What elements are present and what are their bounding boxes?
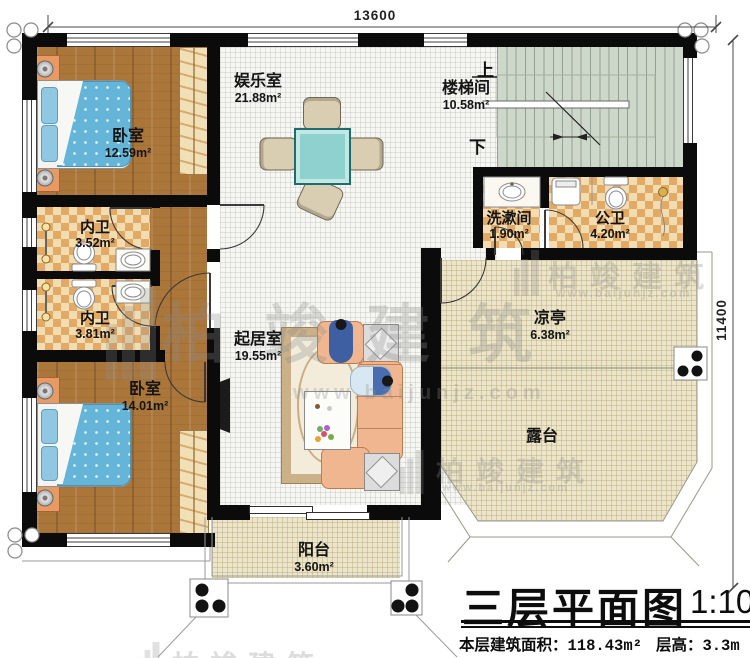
- wall-living-bottom-a: [207, 505, 250, 520]
- wall-bedroom-right-a: [207, 47, 220, 205]
- wall-bath-divider: [37, 271, 160, 279]
- pillow: [41, 87, 58, 124]
- wall-living-bottom-b: [367, 505, 441, 520]
- watermark-logo-icon: [398, 450, 426, 496]
- wardrobe: [179, 47, 209, 175]
- chair: [346, 138, 384, 171]
- room-label-stairwell: 楼梯间 10.58m²: [442, 80, 490, 113]
- title-underline: [461, 626, 750, 628]
- pillow: [41, 409, 58, 444]
- watermark-logo-icon: [512, 250, 542, 298]
- watermark-logo-icon: [136, 642, 162, 658]
- wall-wash-public-divider: [540, 177, 549, 208]
- floorplan-canvas: 柏竣建筑 www.baijunjz.com 柏竣建筑 www.baijunjz.…: [0, 0, 750, 658]
- room-label-publicbath: 公卫 4.20m²: [590, 210, 630, 242]
- watermark-name: 柏竣建筑: [162, 284, 570, 376]
- wall-bath-right-b: [150, 250, 160, 286]
- window: [67, 533, 170, 547]
- chair: [303, 97, 341, 130]
- stairs-down-label: 下: [469, 133, 486, 158]
- window: [248, 33, 358, 47]
- stairs-up-label: 上: [477, 56, 494, 81]
- dimension-right: 11400: [714, 285, 730, 355]
- title-underline: [461, 620, 750, 623]
- room-label-terrace: 露台: [526, 428, 558, 446]
- title-stats: 本层建筑面积：118.43m²层高：3.3m: [459, 633, 740, 655]
- room-label-bedroom1: 卧室 12.59m²: [105, 128, 152, 161]
- room-label-livingroom: 起居室 19.55m²: [234, 331, 282, 364]
- watermark-url: www.baijunjz.com: [293, 382, 546, 405]
- floor-area-value: 118.43m²: [568, 637, 642, 655]
- side-table: [364, 453, 400, 491]
- pillow: [41, 125, 58, 162]
- room-label-balcony: 阳台 3.60m²: [294, 542, 334, 575]
- window: [22, 290, 37, 331]
- window: [67, 33, 170, 47]
- armchair: [321, 447, 370, 489]
- chair: [260, 138, 298, 171]
- sliding-door: [306, 512, 370, 520]
- game-table: [294, 128, 351, 185]
- watermark-name: 柏竣建筑: [172, 644, 324, 658]
- wall-bathblock-bottom-a: [486, 248, 495, 260]
- room-label-innerbath2: 内卫 3.81m²: [75, 310, 115, 342]
- watermark-url: www.baijunjz.com: [556, 286, 692, 300]
- room-label-bedroom2: 卧室 14.01m²: [122, 381, 169, 414]
- wall-bath-right-a: [150, 195, 160, 208]
- floor-stairwell: [497, 47, 683, 167]
- wardrobe: [179, 430, 209, 534]
- window: [22, 398, 37, 492]
- floor-height-label: 层高：: [656, 637, 703, 654]
- window: [683, 58, 697, 143]
- room-label-pavilion: 凉亭 6.38m²: [530, 310, 570, 343]
- window: [424, 33, 467, 47]
- floor-height-value: 3.3m: [702, 637, 739, 655]
- wall-bedroom-right-b: [207, 249, 220, 262]
- wall-bed1-bath: [37, 195, 207, 207]
- drawing-scale: 1:100: [690, 583, 750, 621]
- sliding-door: [249, 506, 313, 514]
- room-label-washroom: 洗漱间 1.90m²: [486, 210, 531, 242]
- floor-area-label: 本层建筑面积：: [459, 637, 568, 654]
- watermark-url: www.baijunjz.com: [442, 482, 569, 494]
- room-label-entertainment: 娱乐室 21.88m²: [234, 73, 282, 106]
- room-label-innerbath1: 内卫 3.52m²: [75, 219, 115, 251]
- dimension-top: 13600: [340, 8, 410, 23]
- wall-bathblock-top: [473, 167, 683, 177]
- pillow: [41, 446, 58, 481]
- window: [22, 218, 37, 247]
- wall-bathblock-left: [473, 167, 483, 248]
- window: [22, 100, 37, 192]
